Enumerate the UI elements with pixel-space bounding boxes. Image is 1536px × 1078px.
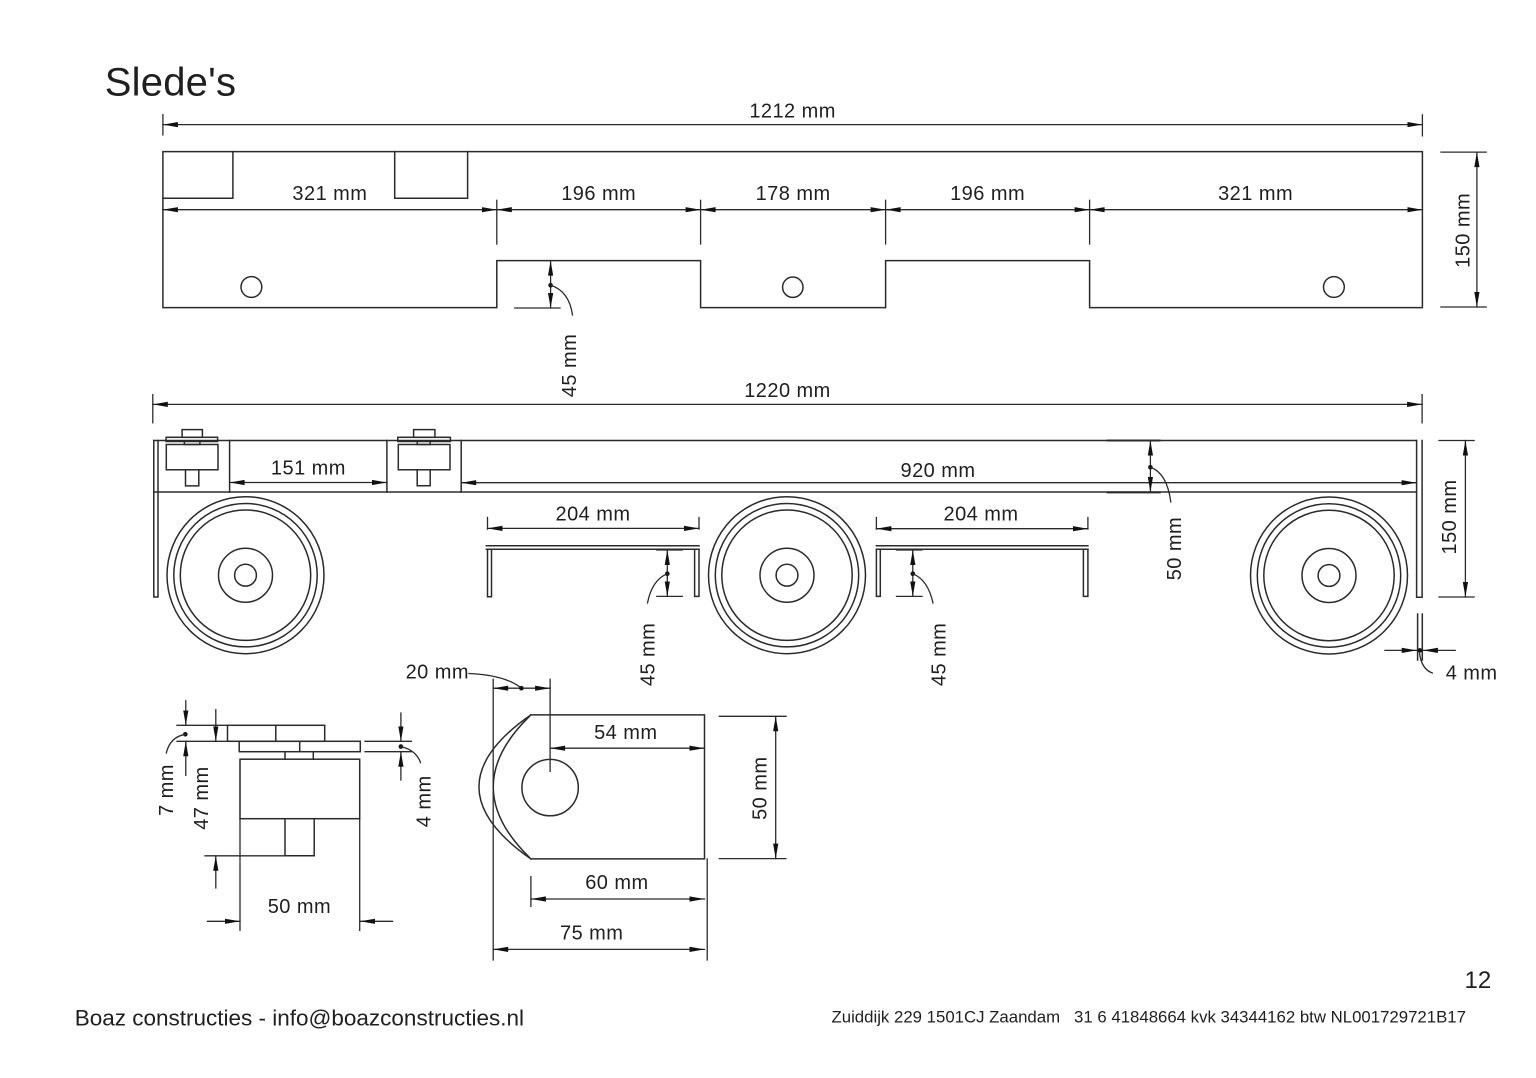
svg-text:45 mm: 45 mm	[559, 334, 581, 397]
svg-text:321 mm: 321 mm	[1218, 183, 1293, 205]
svg-text:196 mm: 196 mm	[561, 183, 636, 205]
svg-text:50 mm: 50 mm	[268, 896, 331, 918]
svg-text:204 mm: 204 mm	[556, 504, 631, 526]
svg-text:45 mm: 45 mm	[929, 623, 951, 686]
svg-text:Zuiddijk 229 1501CJ Zaandam: Zuiddijk 229 1501CJ Zaandam 31 6 4184866…	[832, 1007, 1466, 1026]
svg-text:Boaz constructies - info@boazc: Boaz constructies - info@boazconstructie…	[75, 1005, 524, 1030]
svg-text:1220 mm: 1220 mm	[744, 380, 831, 402]
svg-text:151 mm: 151 mm	[271, 457, 346, 479]
svg-text:50 mm: 50 mm	[750, 757, 772, 820]
svg-text:54 mm: 54 mm	[594, 722, 657, 744]
svg-text:45 mm: 45 mm	[637, 623, 659, 686]
svg-text:204 mm: 204 mm	[944, 504, 1019, 526]
svg-text:20 mm: 20 mm	[406, 662, 469, 684]
svg-text:7 mm: 7 mm	[156, 764, 178, 816]
svg-text:920 mm: 920 mm	[901, 460, 976, 482]
svg-text:321 mm: 321 mm	[292, 183, 367, 205]
svg-text:50 mm: 50 mm	[1164, 517, 1186, 580]
svg-text:12: 12	[1465, 967, 1492, 994]
svg-text:150 mm: 150 mm	[1453, 193, 1475, 268]
svg-text:47 mm: 47 mm	[191, 766, 213, 829]
svg-text:75 mm: 75 mm	[560, 922, 623, 944]
svg-text:Slede's: Slede's	[105, 60, 236, 104]
svg-text:4 mm: 4 mm	[1446, 663, 1498, 685]
svg-text:60 mm: 60 mm	[585, 872, 648, 894]
svg-text:178 mm: 178 mm	[756, 183, 831, 205]
svg-text:196 mm: 196 mm	[950, 183, 1025, 205]
svg-text:150 mm: 150 mm	[1439, 480, 1461, 555]
svg-text:1212 mm: 1212 mm	[749, 101, 836, 123]
svg-text:4 mm: 4 mm	[414, 775, 436, 827]
